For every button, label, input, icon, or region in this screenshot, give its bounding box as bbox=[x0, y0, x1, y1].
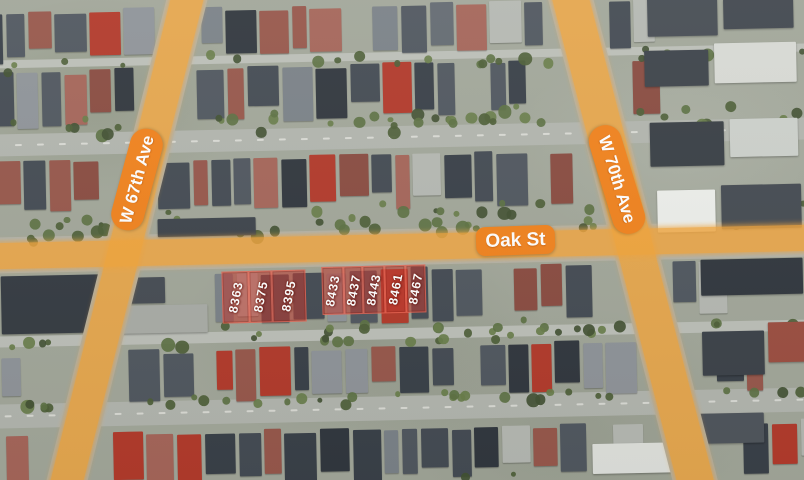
tree bbox=[341, 399, 352, 410]
tree bbox=[398, 206, 410, 218]
tree bbox=[40, 403, 47, 410]
lane-marking bbox=[598, 403, 605, 405]
building bbox=[431, 269, 453, 321]
building bbox=[508, 344, 528, 393]
lot-number-label: 8433 bbox=[323, 274, 343, 308]
tree bbox=[26, 399, 35, 408]
building bbox=[566, 265, 593, 317]
building bbox=[384, 430, 399, 474]
building bbox=[177, 434, 203, 480]
building bbox=[371, 346, 396, 382]
lane-marking bbox=[466, 406, 473, 408]
tree bbox=[147, 399, 153, 405]
tree bbox=[799, 49, 804, 55]
street-label-text: Oak St bbox=[485, 228, 546, 252]
building bbox=[432, 348, 454, 385]
lane-marking bbox=[510, 405, 517, 407]
lane-marking bbox=[433, 135, 440, 137]
tree bbox=[546, 388, 554, 396]
tree bbox=[64, 217, 70, 223]
lane-marking bbox=[774, 399, 781, 401]
tree bbox=[332, 337, 343, 348]
building bbox=[457, 4, 487, 50]
building bbox=[225, 10, 256, 53]
building bbox=[89, 69, 111, 113]
tree bbox=[328, 121, 334, 127]
tree bbox=[583, 324, 595, 336]
tree bbox=[334, 57, 341, 64]
tree bbox=[82, 116, 88, 122]
tree bbox=[284, 399, 291, 406]
tree bbox=[637, 108, 645, 116]
lane-marking bbox=[620, 402, 627, 404]
building bbox=[554, 340, 580, 382]
lane-marking bbox=[313, 409, 320, 411]
lane-marking bbox=[257, 139, 264, 141]
tree bbox=[574, 325, 581, 332]
lane-marking bbox=[59, 143, 66, 145]
lane-marking bbox=[708, 400, 715, 402]
building bbox=[163, 353, 194, 396]
tree bbox=[681, 105, 690, 114]
tree bbox=[518, 52, 532, 66]
building bbox=[264, 429, 282, 474]
building bbox=[309, 154, 336, 202]
building bbox=[531, 344, 552, 392]
building bbox=[524, 2, 542, 45]
tree bbox=[311, 206, 323, 218]
lot-number-label: 8467 bbox=[406, 272, 426, 306]
lot-number-label: 8461 bbox=[386, 272, 406, 306]
lane-marking bbox=[225, 411, 232, 413]
lane-marking bbox=[279, 138, 286, 140]
lane-marking bbox=[213, 140, 220, 142]
tree bbox=[465, 112, 477, 124]
tree bbox=[566, 388, 573, 395]
lane-marking bbox=[269, 410, 276, 412]
building bbox=[316, 68, 348, 119]
building bbox=[456, 269, 483, 315]
building bbox=[113, 432, 144, 480]
tree bbox=[436, 207, 444, 215]
lane-marking bbox=[499, 134, 506, 136]
building bbox=[310, 8, 342, 52]
building bbox=[644, 50, 709, 87]
tree bbox=[476, 206, 488, 218]
building bbox=[402, 429, 418, 474]
tree bbox=[491, 335, 500, 344]
tree bbox=[595, 393, 601, 399]
lane-marking bbox=[565, 132, 572, 134]
tree bbox=[81, 214, 93, 226]
tree bbox=[226, 113, 238, 125]
building bbox=[114, 68, 135, 111]
building bbox=[292, 6, 307, 49]
building bbox=[437, 63, 455, 115]
lane-marking bbox=[15, 144, 22, 146]
building bbox=[551, 154, 574, 204]
lot-number-label: 8437 bbox=[344, 273, 364, 307]
lane-marking bbox=[49, 414, 56, 416]
building bbox=[6, 436, 29, 480]
building bbox=[647, 0, 718, 37]
building bbox=[452, 430, 472, 477]
tree bbox=[175, 340, 189, 354]
building bbox=[339, 154, 369, 196]
highlighted-lots-group: 83638375839584338437844384618467 bbox=[221, 264, 426, 323]
lane-marking bbox=[159, 412, 166, 414]
tree bbox=[543, 58, 554, 69]
building bbox=[201, 7, 222, 44]
building bbox=[0, 15, 3, 65]
building bbox=[480, 345, 505, 385]
tree bbox=[536, 199, 546, 209]
building bbox=[353, 429, 382, 480]
building bbox=[129, 350, 161, 403]
building bbox=[158, 217, 256, 237]
building bbox=[721, 184, 802, 230]
lane-marking bbox=[137, 412, 144, 414]
aerial-satellite-map: 83638375839584338437844384618467 W 67th … bbox=[0, 0, 804, 480]
lot-8363: 8363 bbox=[221, 271, 249, 324]
building bbox=[490, 62, 506, 110]
tree bbox=[120, 63, 125, 68]
building bbox=[41, 73, 61, 127]
lane-marking bbox=[335, 408, 342, 410]
building bbox=[509, 61, 527, 104]
building bbox=[294, 347, 309, 390]
building bbox=[650, 121, 725, 167]
tree bbox=[222, 397, 230, 405]
building bbox=[28, 12, 52, 50]
tree bbox=[493, 323, 502, 332]
building bbox=[312, 351, 343, 394]
lane-marking bbox=[203, 411, 210, 413]
building bbox=[281, 159, 307, 208]
lane-marking bbox=[115, 413, 122, 415]
building bbox=[90, 12, 121, 55]
building bbox=[496, 153, 528, 206]
lane-marking bbox=[191, 140, 198, 142]
lot-number-label: 8363 bbox=[226, 280, 246, 314]
lane-marking bbox=[27, 415, 34, 417]
lane-marking bbox=[379, 407, 386, 409]
tree bbox=[434, 324, 443, 333]
lane-marking bbox=[247, 410, 254, 412]
building bbox=[399, 346, 430, 393]
building bbox=[772, 424, 799, 465]
building bbox=[6, 14, 25, 57]
building bbox=[24, 161, 47, 210]
tree bbox=[61, 58, 68, 65]
building bbox=[474, 427, 499, 467]
lane-marking bbox=[291, 409, 298, 411]
building bbox=[700, 258, 803, 296]
building bbox=[284, 432, 317, 480]
tree bbox=[394, 60, 401, 67]
tree bbox=[161, 338, 175, 352]
building bbox=[372, 6, 398, 50]
building bbox=[395, 155, 410, 209]
building bbox=[73, 161, 99, 200]
lane-marking bbox=[357, 408, 364, 410]
building bbox=[730, 118, 799, 157]
lane-marking bbox=[521, 133, 528, 135]
tree bbox=[431, 114, 439, 122]
building bbox=[17, 73, 39, 129]
tree bbox=[511, 471, 516, 476]
lane-marking bbox=[576, 403, 583, 405]
tree bbox=[584, 204, 595, 215]
building bbox=[227, 68, 245, 119]
tree bbox=[453, 211, 459, 217]
building bbox=[253, 158, 278, 209]
building bbox=[1, 358, 21, 397]
tree bbox=[39, 340, 47, 348]
tree bbox=[369, 223, 381, 235]
tree bbox=[42, 229, 54, 241]
lane-marking bbox=[81, 143, 88, 145]
tree bbox=[354, 116, 366, 128]
building bbox=[609, 1, 630, 48]
building bbox=[768, 322, 804, 363]
tree bbox=[256, 127, 266, 137]
building bbox=[414, 62, 434, 109]
lane-marking bbox=[323, 137, 330, 139]
building bbox=[401, 5, 428, 52]
building bbox=[350, 63, 380, 102]
tree bbox=[438, 334, 449, 345]
building bbox=[371, 154, 392, 193]
lane-marking bbox=[554, 404, 561, 406]
building bbox=[583, 343, 603, 389]
building bbox=[345, 349, 368, 393]
building bbox=[444, 154, 472, 198]
building bbox=[514, 268, 538, 311]
lot-8375: 8375 bbox=[248, 270, 272, 323]
tree bbox=[29, 218, 41, 230]
tree bbox=[296, 393, 307, 404]
building bbox=[211, 160, 231, 207]
lane-marking bbox=[543, 133, 550, 135]
lane-marking bbox=[477, 134, 484, 136]
building bbox=[259, 347, 291, 397]
tree bbox=[9, 344, 16, 351]
lane-marking bbox=[796, 399, 803, 401]
building bbox=[0, 161, 21, 204]
lot-number-label: 8395 bbox=[279, 279, 299, 313]
tree bbox=[335, 219, 346, 230]
street-label-oak-st: Oak St bbox=[476, 225, 556, 257]
building bbox=[421, 428, 449, 468]
building bbox=[560, 424, 587, 472]
lot-8461: 8461 bbox=[384, 265, 406, 314]
lane-marking bbox=[422, 406, 429, 408]
tree bbox=[198, 395, 209, 406]
lane-marking bbox=[455, 135, 462, 137]
building bbox=[0, 72, 14, 127]
tree bbox=[270, 226, 281, 237]
tree bbox=[725, 101, 737, 113]
building bbox=[234, 158, 251, 204]
lot-8395: 8395 bbox=[271, 269, 306, 322]
building bbox=[319, 428, 350, 472]
tree bbox=[56, 222, 64, 230]
building bbox=[533, 428, 557, 466]
lane-marking bbox=[181, 412, 188, 414]
building bbox=[723, 0, 794, 29]
tree bbox=[343, 336, 354, 347]
tree bbox=[513, 104, 519, 110]
building bbox=[49, 160, 71, 211]
tree bbox=[23, 337, 35, 349]
building bbox=[489, 1, 521, 43]
tree bbox=[724, 387, 731, 394]
tree bbox=[253, 399, 262, 408]
lot-8467: 8467 bbox=[405, 264, 426, 313]
building bbox=[146, 433, 174, 480]
tree bbox=[479, 59, 488, 68]
building bbox=[55, 14, 87, 53]
tree bbox=[312, 56, 324, 68]
tree bbox=[498, 206, 512, 220]
tree bbox=[441, 389, 448, 396]
building bbox=[540, 263, 563, 306]
tree bbox=[519, 112, 531, 124]
lane-marking bbox=[752, 400, 759, 402]
tree bbox=[507, 331, 514, 338]
tree bbox=[114, 124, 121, 131]
tree bbox=[166, 209, 171, 214]
building bbox=[205, 434, 236, 475]
tree bbox=[380, 200, 387, 207]
lane-marking bbox=[411, 136, 418, 138]
lane-marking bbox=[488, 405, 495, 407]
building bbox=[430, 2, 454, 46]
tree bbox=[555, 329, 562, 336]
lot-number-label: 8443 bbox=[364, 273, 384, 307]
building bbox=[673, 261, 696, 302]
building bbox=[412, 153, 441, 195]
building bbox=[383, 62, 412, 114]
lane-marking bbox=[400, 407, 407, 409]
tree bbox=[535, 394, 545, 404]
building bbox=[235, 349, 256, 401]
tree bbox=[369, 111, 380, 122]
lane-marking bbox=[37, 143, 44, 145]
tree bbox=[461, 473, 470, 480]
building bbox=[216, 350, 232, 389]
building bbox=[123, 7, 155, 55]
building bbox=[502, 426, 530, 464]
building bbox=[197, 69, 225, 119]
building bbox=[239, 433, 262, 477]
building bbox=[714, 42, 797, 84]
tree bbox=[391, 123, 397, 129]
building bbox=[606, 342, 638, 393]
tree bbox=[520, 317, 526, 323]
lane-marking bbox=[5, 415, 12, 417]
building bbox=[247, 65, 279, 106]
lot-8433: 8433 bbox=[321, 266, 344, 315]
tree bbox=[395, 391, 401, 397]
building bbox=[193, 160, 208, 205]
lane-marking bbox=[103, 142, 110, 144]
building bbox=[702, 330, 765, 375]
lane-marking bbox=[235, 139, 242, 141]
lane-marking bbox=[367, 137, 374, 139]
lane-marking bbox=[444, 406, 451, 408]
lane-marking bbox=[631, 131, 638, 133]
tree bbox=[11, 62, 17, 68]
building bbox=[474, 151, 493, 201]
lot-8443: 8443 bbox=[362, 265, 385, 314]
tree bbox=[348, 214, 356, 222]
tree bbox=[206, 50, 216, 60]
building bbox=[259, 10, 289, 54]
lot-number-label: 8375 bbox=[251, 280, 271, 314]
lane-marking bbox=[730, 400, 737, 402]
lot-8437: 8437 bbox=[343, 266, 363, 314]
lane-marking bbox=[301, 138, 308, 140]
lane-marking bbox=[642, 402, 649, 404]
tree bbox=[598, 326, 606, 334]
lane-marking bbox=[345, 137, 352, 139]
tree bbox=[316, 218, 324, 226]
tree bbox=[795, 387, 804, 398]
tree bbox=[498, 105, 512, 119]
tree bbox=[256, 331, 262, 337]
building bbox=[282, 67, 313, 121]
tree bbox=[10, 119, 17, 126]
